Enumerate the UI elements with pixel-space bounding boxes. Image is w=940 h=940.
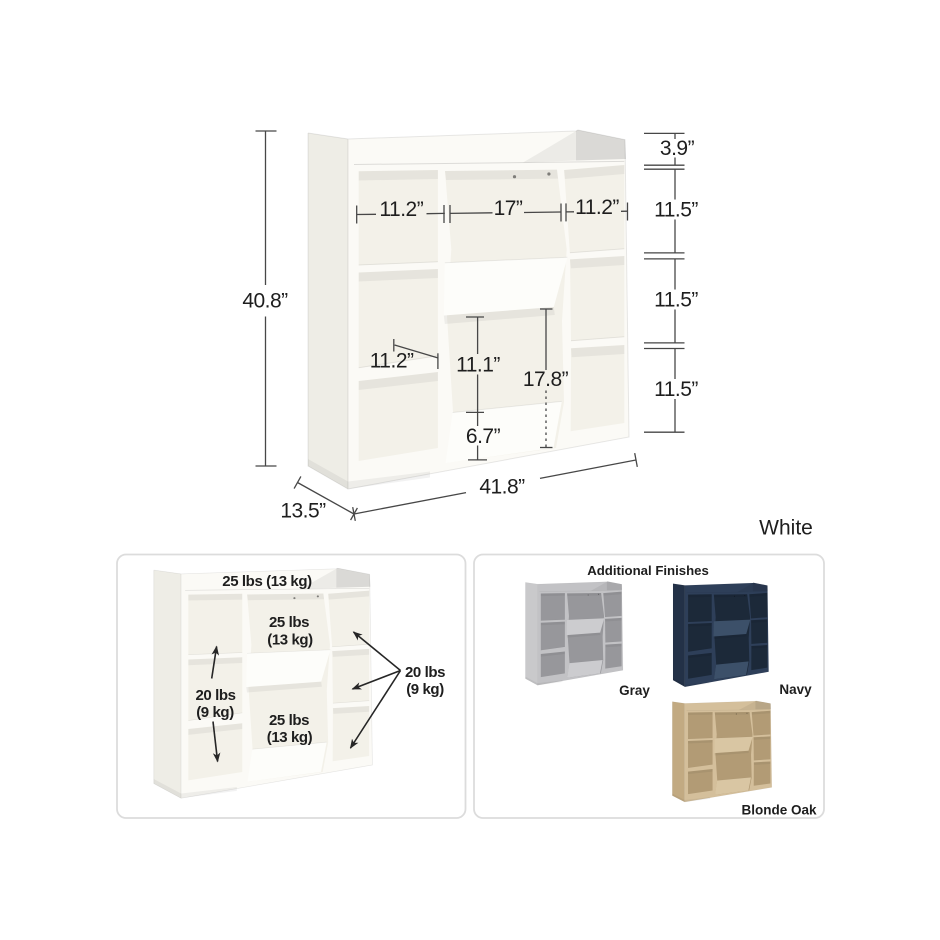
svg-text:41.8”: 41.8” xyxy=(479,476,525,499)
svg-text:11.5”: 11.5” xyxy=(654,378,698,401)
svg-text:3.9”: 3.9” xyxy=(660,137,695,160)
svg-text:Blonde Oak: Blonde Oak xyxy=(741,803,817,818)
svg-text:11.1”: 11.1” xyxy=(456,354,500,377)
svg-text:11.5”: 11.5” xyxy=(654,199,698,222)
svg-text:Navy: Navy xyxy=(779,682,812,697)
svg-text:20 lbs: 20 lbs xyxy=(195,687,235,704)
svg-text:Additional Finishes: Additional Finishes xyxy=(587,563,709,578)
svg-text:20 lbs: 20 lbs xyxy=(405,664,445,681)
svg-text:Gray: Gray xyxy=(619,683,650,698)
svg-text:17”: 17” xyxy=(494,197,523,220)
svg-text:(13 kg): (13 kg) xyxy=(267,729,313,746)
svg-text:11.5”: 11.5” xyxy=(654,289,698,312)
svg-text:White: White xyxy=(759,517,813,540)
svg-text:11.2”: 11.2” xyxy=(575,196,619,219)
svg-text:25 lbs: 25 lbs xyxy=(269,614,309,631)
svg-text:(9 kg): (9 kg) xyxy=(406,681,444,698)
svg-text:(13 kg): (13 kg) xyxy=(267,632,313,649)
svg-text:40.8”: 40.8” xyxy=(242,290,288,313)
svg-text:25 lbs (13 kg): 25 lbs (13 kg) xyxy=(222,573,312,590)
svg-text:6.7”: 6.7” xyxy=(466,425,501,448)
svg-text:25 lbs: 25 lbs xyxy=(269,712,309,729)
svg-text:11.2”: 11.2” xyxy=(370,350,414,373)
svg-text:11.2”: 11.2” xyxy=(379,198,423,221)
svg-text:17.8”: 17.8” xyxy=(523,368,569,391)
svg-text:13.5”: 13.5” xyxy=(280,500,326,523)
svg-text:(9 kg): (9 kg) xyxy=(196,704,234,721)
